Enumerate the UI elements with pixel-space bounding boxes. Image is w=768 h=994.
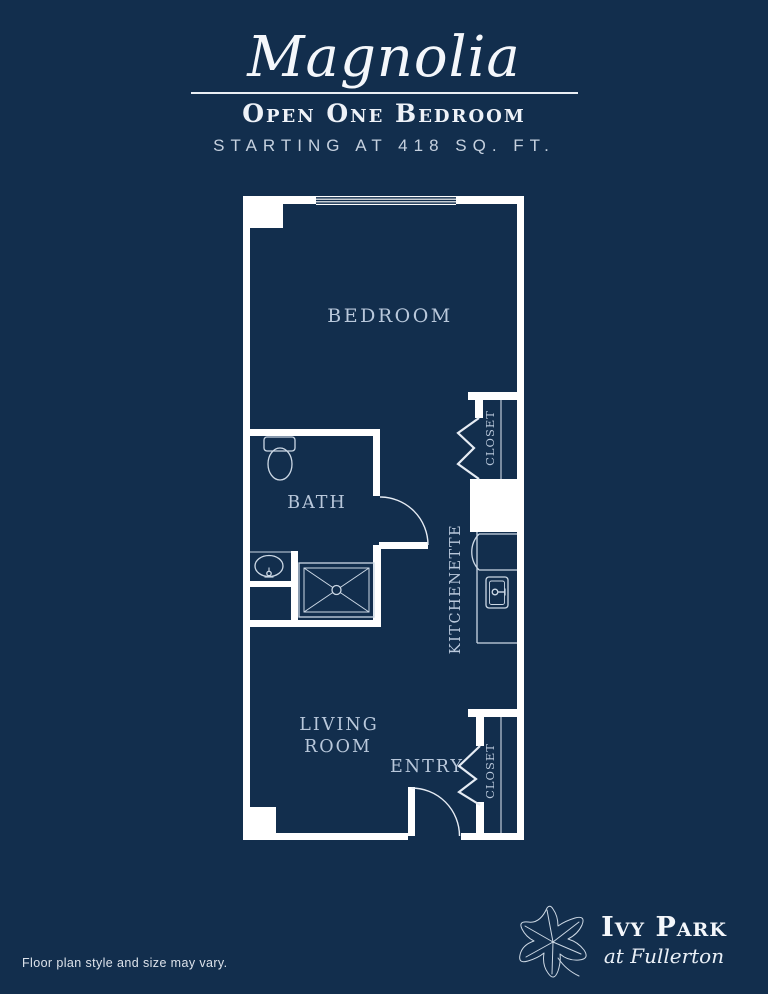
wall-block-mid-right [470, 479, 524, 532]
kitchenette-counter [477, 532, 517, 643]
logo-location: at Fullerton [588, 944, 740, 968]
toilet [264, 437, 295, 480]
vanity-front-edge [250, 581, 298, 587]
bath-door-leaf [379, 542, 428, 549]
walls [243, 196, 524, 840]
disclaimer-text: Floor plan style and size may vary. [22, 956, 228, 970]
bedroom-window [316, 197, 456, 205]
corner-column-bottom-left [243, 807, 276, 836]
closet-lower-label: CLOSET [483, 743, 497, 799]
closet-lower-stub-wall [468, 709, 517, 717]
left-wall [243, 196, 250, 840]
bath-south-wall [243, 620, 381, 627]
entry-label: ENTRY [390, 757, 464, 777]
bedroom-label: BEDROOM [327, 305, 452, 327]
entry-door-leaf [408, 787, 415, 836]
living-room-label-line2: ROOM [304, 737, 372, 757]
flyer-page: Magnolia Open One Bedroom STARTING AT 41… [0, 0, 768, 994]
living-room-label-line1: LIVING [299, 715, 378, 735]
closet-upper-label: CLOSET [483, 410, 497, 466]
vanity-side-wall [291, 551, 298, 627]
closet-lower-jamb-top [476, 709, 484, 746]
bath-label: BATH [287, 493, 346, 513]
bath-east-wall-upper [373, 429, 380, 496]
floor-plan-drawing: BEDROOM BATH LIVING ROOM ENTRY KITCHENET… [0, 0, 768, 994]
corner-column-top-left [249, 198, 283, 228]
kitchenette-label: KITCHENETTE [448, 524, 464, 655]
bath-north-wall [250, 429, 380, 436]
bottom-wall-right-segment [461, 833, 524, 840]
vanity-sink [250, 552, 291, 577]
entry-door-swing-arc [412, 788, 460, 836]
bath-door-swing-arc [380, 497, 428, 545]
closet-lower-jamb-bottom [476, 802, 484, 836]
shower [299, 563, 374, 617]
top-wall-right-segment [456, 196, 524, 204]
closet-upper-bifold-door [458, 418, 479, 479]
refrigerator [472, 534, 517, 570]
ivy-leaf-icon [519, 902, 589, 982]
kitchenette-sink [486, 577, 508, 608]
closet-upper-jamb [475, 392, 483, 418]
logo-name: Ivy Park [588, 912, 740, 943]
